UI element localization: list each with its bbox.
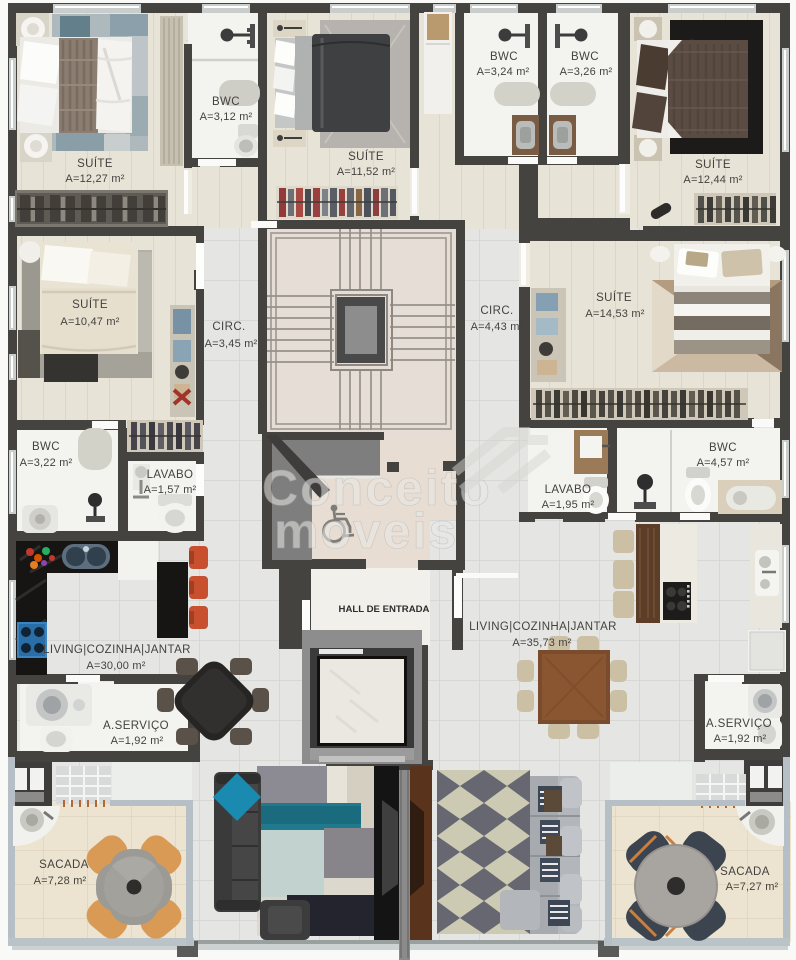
svg-text:A=3,26 m²: A=3,26 m² xyxy=(560,66,613,78)
svg-text:SUÍTE: SUÍTE xyxy=(596,291,632,304)
svg-text:A.SERVIÇO: A.SERVIÇO xyxy=(103,720,169,732)
svg-text:A=1,92 m²: A=1,92 m² xyxy=(714,733,767,745)
svg-text:A=7,27 m²: A=7,27 m² xyxy=(726,881,779,893)
svg-text:LIVING|COZINHA|JANTAR: LIVING|COZINHA|JANTAR xyxy=(43,644,191,656)
svg-text:SUÍTE: SUÍTE xyxy=(695,158,731,171)
svg-text:A=10,47 m²: A=10,47 m² xyxy=(60,316,119,328)
svg-text:A.SERVIÇO: A.SERVIÇO xyxy=(706,718,772,730)
svg-text:A=4,57 m²: A=4,57 m² xyxy=(697,457,750,469)
svg-text:SACADA: SACADA xyxy=(720,866,770,878)
svg-text:BWC: BWC xyxy=(490,51,518,63)
svg-text:A=30,00 m²: A=30,00 m² xyxy=(86,660,145,672)
svg-text:BWC: BWC xyxy=(32,441,60,453)
svg-text:A=1,57 m²: A=1,57 m² xyxy=(144,484,197,496)
svg-text:A=1,95 m²: A=1,95 m² xyxy=(542,499,595,511)
svg-text:SUÍTE: SUÍTE xyxy=(72,298,108,311)
svg-text:A=12,44 m²: A=12,44 m² xyxy=(683,174,742,186)
svg-text:LIVING|COZINHA|JANTAR: LIVING|COZINHA|JANTAR xyxy=(469,621,617,633)
svg-text:A=14,53 m²: A=14,53 m² xyxy=(585,308,644,320)
svg-text:A=4,43 m²: A=4,43 m² xyxy=(471,321,524,333)
svg-text:A=11,52 m²: A=11,52 m² xyxy=(337,166,395,178)
svg-text:A=3,12 m²: A=3,12 m² xyxy=(200,111,253,123)
svg-text:BWC: BWC xyxy=(212,96,240,108)
svg-text:SACADA: SACADA xyxy=(39,859,89,871)
svg-text:A=35,73 m²: A=35,73 m² xyxy=(512,637,571,649)
svg-text:LAVABO: LAVABO xyxy=(147,469,194,481)
svg-text:CIRC.: CIRC. xyxy=(480,305,513,317)
svg-text:A=12,27 m²: A=12,27 m² xyxy=(65,173,124,185)
svg-text:BWC: BWC xyxy=(571,51,599,63)
svg-text:BWC: BWC xyxy=(709,442,737,454)
svg-text:HALL DE ENTRADA: HALL DE ENTRADA xyxy=(339,604,430,615)
svg-text:LAVABO: LAVABO xyxy=(545,484,592,496)
svg-text:A=3,24 m²: A=3,24 m² xyxy=(477,66,530,78)
svg-text:A=7,28 m²: A=7,28 m² xyxy=(34,875,87,887)
svg-text:A=3,45 m²: A=3,45 m² xyxy=(205,338,258,350)
svg-text:A=3,22 m²: A=3,22 m² xyxy=(20,457,73,469)
svg-text:moveis: moveis xyxy=(274,503,458,559)
svg-text:SUÍTE: SUÍTE xyxy=(348,150,384,163)
svg-text:A=1,92 m²: A=1,92 m² xyxy=(111,735,164,747)
svg-text:SUÍTE: SUÍTE xyxy=(77,157,113,170)
svg-text:CIRC.: CIRC. xyxy=(212,321,245,333)
